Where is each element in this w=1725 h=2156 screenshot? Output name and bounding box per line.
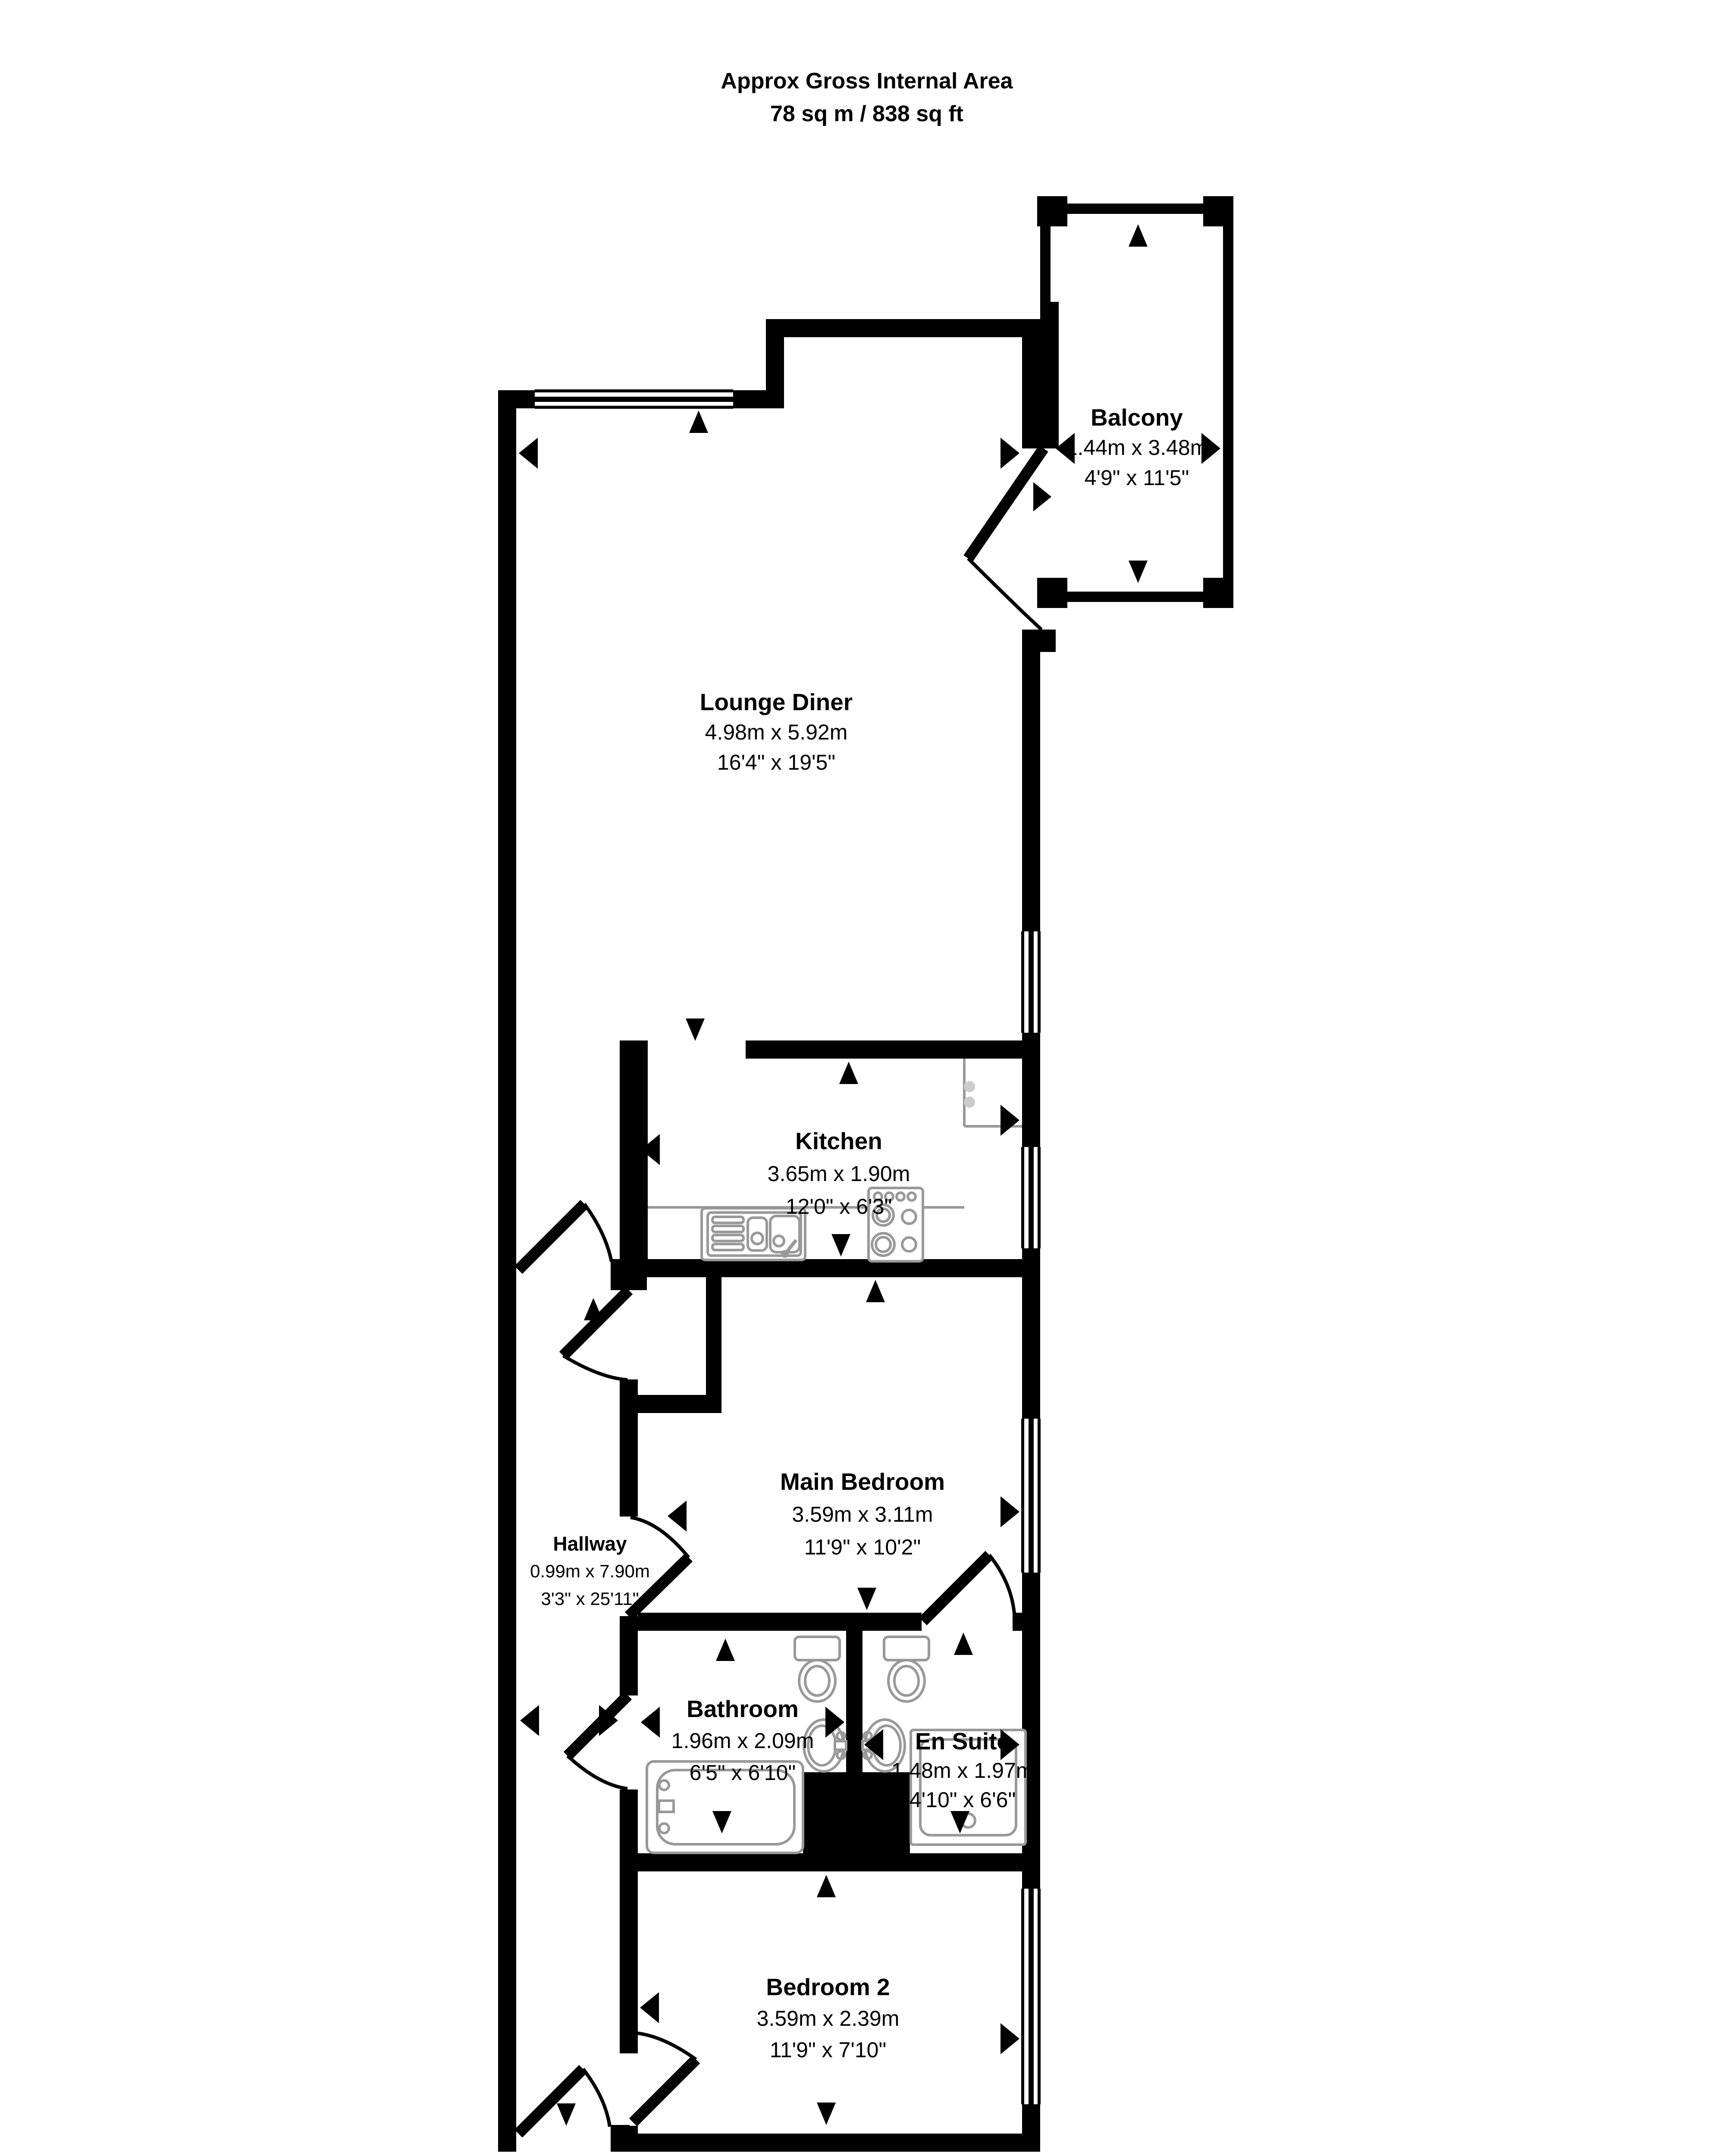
wall-hall-right-d <box>620 1789 638 2053</box>
main-bedroom-arrow-left-icon <box>668 1501 687 1532</box>
title-line-1: Approx Gross Internal Area <box>721 65 1013 97</box>
room-dims-imperial: 12'0" x 6'3" <box>768 1190 910 1223</box>
room-dims-imperial: 11'9" x 7'10" <box>757 2034 900 2066</box>
wall-hall-right-a <box>620 1277 638 1290</box>
wall-hall-right-e <box>620 2126 638 2152</box>
room-label-lounge-diner: Lounge Diner 4.98m x 5.92m 16'4" x 19'5" <box>700 687 853 777</box>
kitchen-arrow-down-icon <box>831 1234 850 1257</box>
room-dims-metric: 1.96m x 2.09m <box>671 1725 814 1757</box>
room-label-balcony: Balcony 1.44m x 3.48m 4'9" x 11'5" <box>1066 402 1208 493</box>
wall-bottom <box>611 2134 1040 2152</box>
bedroom-2-arrow-down-icon <box>817 2103 836 2125</box>
room-dims-metric: 3.65m x 1.90m <box>768 1157 910 1190</box>
title-line-2: 78 sq m / 838 sq ft <box>721 97 1013 130</box>
wall-hall-right-c <box>620 1616 638 1695</box>
wall-bathroom-top <box>638 1613 922 1631</box>
room-name: Balcony <box>1066 402 1208 432</box>
room-dims-metric: 4.98m x 5.92m <box>700 717 853 747</box>
room-label-bathroom: Bathroom 1.96m x 2.09m 6'5" x 6'10" <box>671 1693 814 1789</box>
bathroom-arrow-left-icon <box>641 1707 660 1738</box>
balcony-post <box>1203 196 1233 226</box>
lounge-arrow-right-icon <box>1000 438 1019 469</box>
hallway-arrow-up-icon <box>584 1298 603 1320</box>
balcony-door-arrow-right-icon <box>1033 482 1051 511</box>
room-dims-metric: 1.48m x 1.97m <box>891 1756 1034 1785</box>
wall-right-balcony-jamb-bottom <box>1040 630 1056 652</box>
room-dims-imperial: 3'3" x 25'11" <box>530 1585 650 1613</box>
wall-kitchen-bottom <box>498 1259 516 1277</box>
wall-right-f <box>1022 2104 1040 2152</box>
wall-bathroom-bottom <box>620 1853 1040 1871</box>
balcony-arrow-up-icon <box>1129 224 1148 247</box>
page-title: Approx Gross Internal Area 78 sq m / 838… <box>721 65 1013 130</box>
room-dims-imperial: 4'10" x 6'6" <box>891 1785 1034 1814</box>
balcony-arrow-down-icon <box>1129 561 1148 583</box>
wall-kitchen-top <box>746 1040 1040 1059</box>
main-bedroom-arrow-right-icon <box>1000 1496 1019 1527</box>
room-name: Kitchen <box>768 1125 910 1157</box>
floorplan-drawing <box>0 0 1725 2156</box>
room-dims-metric: 3.59m x 3.11m <box>780 1498 945 1531</box>
room-name: Bedroom 2 <box>757 1971 900 2003</box>
wall-hall-right-b <box>620 1379 638 1517</box>
entrance-door <box>518 2069 610 2134</box>
room-dims-imperial: 16'4" x 19'5" <box>700 747 853 777</box>
bathroom-toilet-icon <box>795 1637 840 1702</box>
hallway-arrow-left-icon <box>520 1705 539 1736</box>
room-name: Bathroom <box>671 1693 814 1725</box>
window-bedroom-2 <box>1020 1889 1042 2104</box>
wall-closet-horizontal <box>638 1395 721 1413</box>
room-dims-imperial: 4'9" x 11'5" <box>1066 463 1208 493</box>
wall-top-right <box>766 319 1059 337</box>
balcony-door <box>968 448 1044 630</box>
ensuite-toilet-icon <box>884 1637 929 1702</box>
room-label-hallway: Hallway 0.99m x 7.90m 3'3" x 25'11" <box>530 1530 650 1613</box>
closet-door <box>563 1290 629 1380</box>
lounge-arrow-down-icon <box>686 1018 705 1041</box>
wall-ensuite-top-jamb <box>1013 1613 1040 1631</box>
room-name: Lounge Diner <box>700 687 853 717</box>
kitchen-arrow-right-icon <box>1000 1105 1019 1136</box>
room-label-main-bedroom: Main Bedroom 3.59m x 3.11m 11'9" x 10'2" <box>780 1465 945 1564</box>
wall-right-b <box>1022 630 1040 931</box>
room-dims-imperial: 6'5" x 6'10" <box>671 1757 814 1789</box>
room-dims-metric: 3.59m x 2.39m <box>757 2003 900 2034</box>
bathroom-arrow-up-icon <box>716 1639 735 1661</box>
room-dims-imperial: 11'9" x 10'2" <box>780 1531 945 1564</box>
ensuite-door <box>923 1555 1014 1621</box>
wall-right-balcony-jamb-top <box>1040 302 1059 448</box>
balcony-post <box>1037 196 1067 226</box>
bedroom-2-arrow-right-icon <box>1000 2023 1019 2054</box>
lounge-arrow-left-icon <box>519 438 538 469</box>
ensuite-arrow-up-icon <box>954 1633 973 1655</box>
room-name: Hallway <box>530 1530 650 1557</box>
bathroom-door <box>568 1695 628 1789</box>
window-kitchen <box>1020 1147 1042 1248</box>
window-main-bedroom <box>1020 1419 1042 1573</box>
hallway-arrow-down-icon <box>557 2103 576 2126</box>
wall-lounge-hall <box>612 1259 1040 1277</box>
wall-bottom-left-stub <box>498 2134 516 2152</box>
window-lounge-right <box>1020 931 1042 1033</box>
bedroom-2-arrow-up-icon <box>817 1875 836 1897</box>
balcony-post <box>1037 578 1067 608</box>
wall-closet-vertical <box>706 1277 721 1413</box>
lounge-hallway-door <box>518 1204 612 1270</box>
room-name: Main Bedroom <box>780 1465 945 1498</box>
room-dims-metric: 1.44m x 3.48m <box>1066 432 1208 463</box>
window-lounge-top <box>535 389 733 410</box>
lounge-arrow-up-icon <box>689 411 708 433</box>
room-label-kitchen: Kitchen 3.65m x 1.90m 12'0" x 6'3" <box>768 1125 910 1223</box>
room-name: En Suite <box>891 1727 1034 1756</box>
room-label-bedroom-2: Bedroom 2 3.59m x 2.39m 11'9" x 7'10" <box>757 1971 900 2066</box>
kitchen-arrow-up-icon <box>839 1062 858 1084</box>
bedroom-2-arrow-left-icon <box>640 1992 659 2023</box>
wall-right-a <box>1022 337 1040 448</box>
bedroom-2-door <box>630 2033 696 2122</box>
room-label-en-suite: En Suite 1.48m x 1.97m 4'10" x 6'6" <box>891 1727 1034 1814</box>
room-dims-metric: 0.99m x 7.90m <box>530 1557 650 1585</box>
balcony-post <box>1203 578 1233 608</box>
main-bedroom-arrow-up-icon <box>866 1280 885 1302</box>
wall-bath-ensuite-divider <box>846 1631 862 1772</box>
main-bedroom-arrow-down-icon <box>857 1588 876 1610</box>
